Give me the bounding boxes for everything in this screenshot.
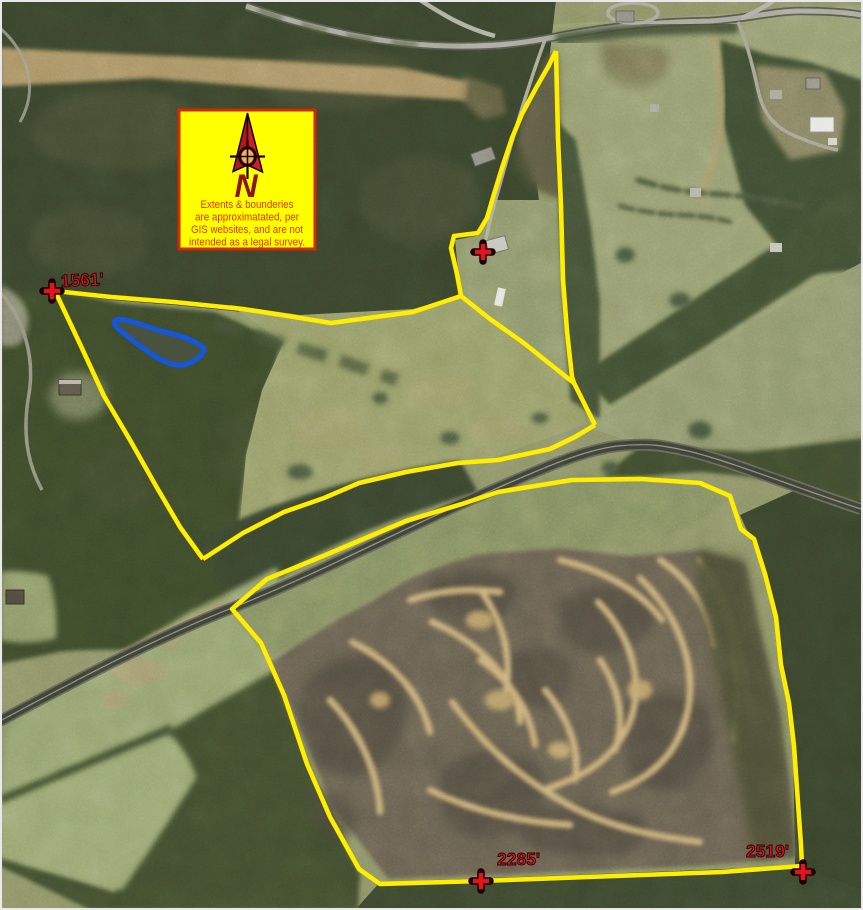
svg-text:2519': 2519' [746, 841, 789, 861]
svg-text:Extents & bounderies: Extents & bounderies [201, 199, 294, 211]
svg-text:intended as a legal survey.: intended as a legal survey. [189, 237, 305, 249]
svg-text:GIS websites, and are not: GIS websites, and are not [191, 224, 303, 236]
svg-text:2285': 2285' [497, 849, 540, 869]
svg-text:are approximatated, per: are approximatated, per [195, 212, 299, 224]
svg-text:1561': 1561' [60, 269, 104, 291]
